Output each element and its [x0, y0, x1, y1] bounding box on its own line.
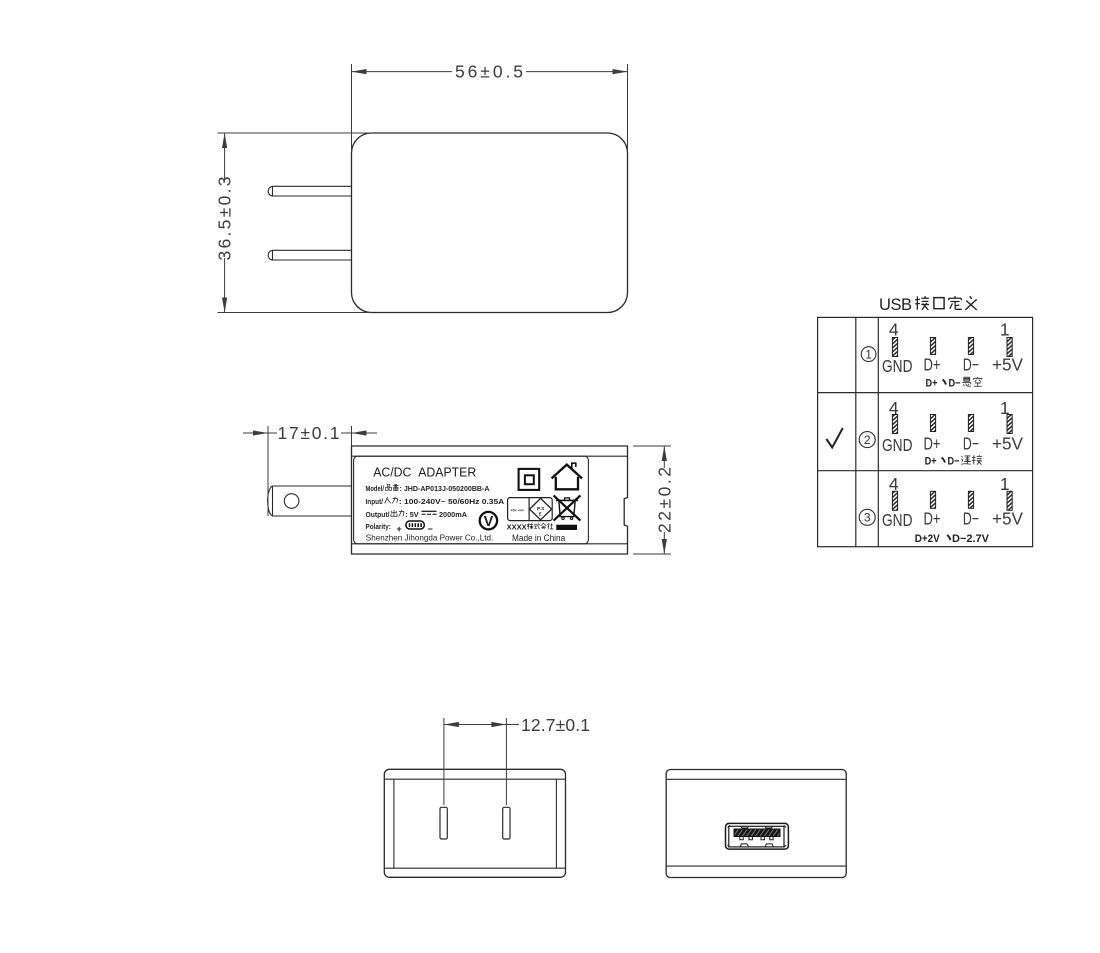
svg-text:D−: D− [963, 434, 979, 454]
svg-text:XXXX: XXXX [507, 523, 527, 532]
svg-text:GND: GND [882, 510, 913, 530]
svg-text:D+: D+ [924, 434, 941, 454]
svg-text:AC/DC ADAPTER: AC/DC ADAPTER [373, 464, 476, 479]
svg-text:Model/: Model/ [366, 484, 385, 493]
svg-text:USB: USB [879, 296, 912, 314]
svg-text:+5V: +5V [992, 434, 1023, 454]
svg-text:P S: P S [537, 506, 544, 511]
svg-text:12.7±0.1: 12.7±0.1 [521, 715, 590, 735]
svg-text:GND: GND [882, 435, 913, 455]
svg-text:1: 1 [865, 349, 871, 361]
svg-text:36.5±0.3: 36.5±0.3 [215, 177, 235, 261]
svg-text:17±0.1: 17±0.1 [278, 423, 340, 443]
svg-text:D−: D− [963, 355, 979, 375]
svg-text:56±0.5: 56±0.5 [455, 62, 523, 82]
svg-text:D+2V: D+2V [915, 533, 941, 545]
svg-text:+5V: +5V [992, 509, 1023, 529]
svg-text:D−2.7V: D−2.7V [952, 533, 990, 545]
svg-text:D+: D+ [924, 355, 941, 375]
svg-text:D−: D− [949, 378, 961, 390]
svg-text:2: 2 [864, 433, 871, 447]
svg-text:Shenzhen Jihongda Power Co.,Lt: Shenzhen Jihongda Power Co.,Ltd. [366, 533, 493, 543]
svg-text:4: 4 [889, 320, 899, 340]
svg-text:Input/: Input/ [366, 497, 384, 506]
svg-text:D+: D+ [925, 456, 937, 468]
svg-text:E: E [539, 512, 542, 517]
svg-text:22±0.2: 22±0.2 [654, 467, 674, 533]
svg-text:1: 1 [1000, 320, 1010, 340]
svg-text:Output/: Output/ [366, 510, 390, 519]
svg-text:D−: D− [963, 509, 979, 529]
svg-text:: JHD-AP013J-050200BB-A: : JHD-AP013J-050200BB-A [400, 484, 491, 493]
svg-text:3: 3 [864, 511, 871, 525]
svg-text:: 5V: : 5V [405, 510, 418, 519]
svg-text:×0× ×××: ×0× ××× [511, 508, 525, 512]
svg-text:D+: D+ [926, 378, 938, 390]
svg-text:+5V: +5V [992, 355, 1023, 375]
svg-text:Made in China: Made in China [512, 533, 566, 544]
svg-text:V: V [484, 514, 494, 530]
svg-text:D+: D+ [924, 509, 941, 529]
svg-text:: 100-240V~ 50/60Hz 0.35A: : 100-240V~ 50/60Hz 0.35A [399, 497, 505, 506]
svg-text:2000mA: 2000mA [439, 510, 468, 519]
svg-text:D−: D− [948, 456, 960, 468]
svg-text:GND: GND [882, 356, 913, 376]
svg-text:Polarity:: Polarity: [366, 522, 391, 531]
